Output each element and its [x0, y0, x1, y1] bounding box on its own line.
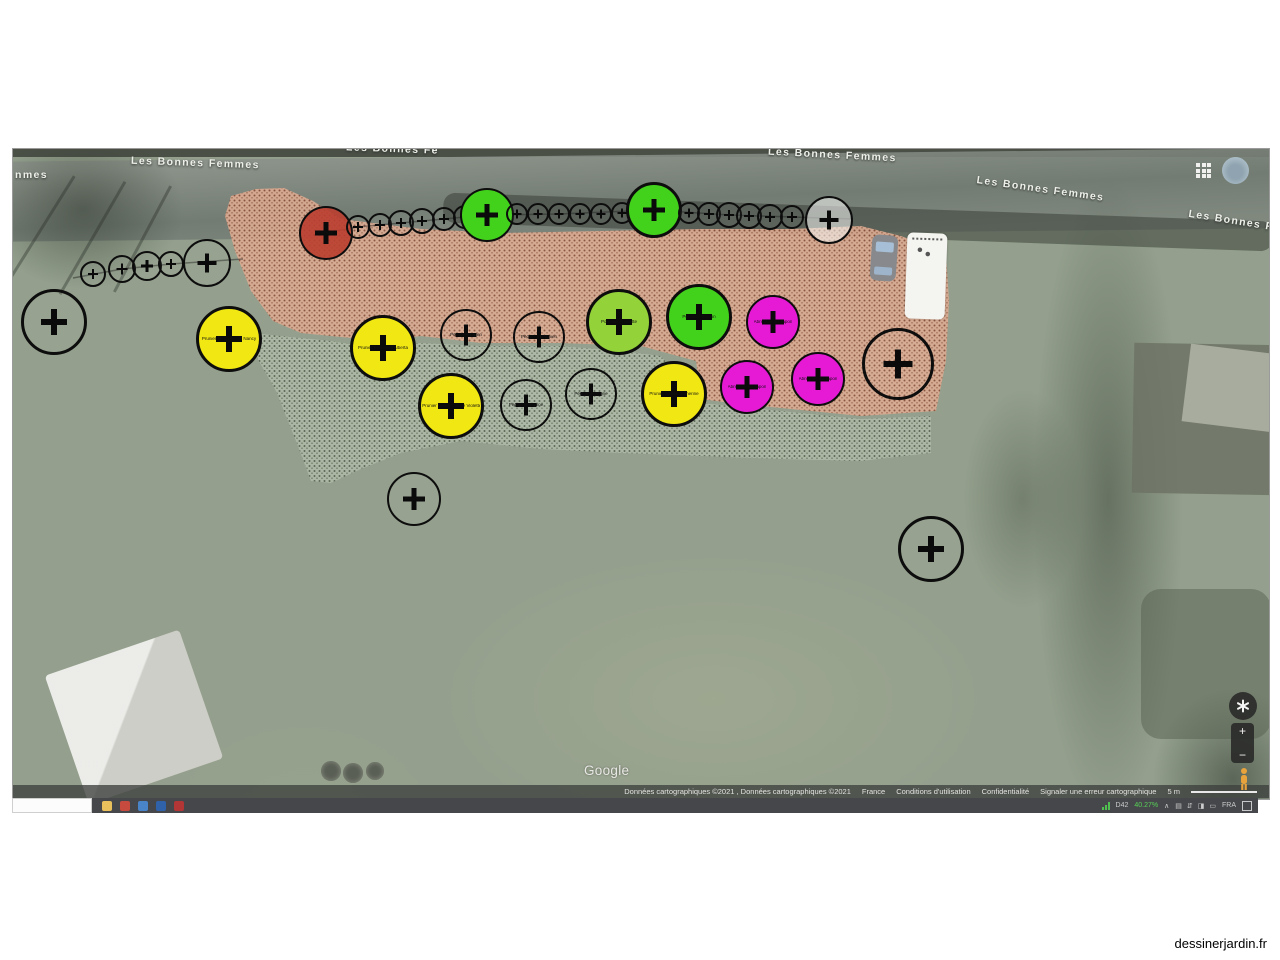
grid-cell — [1202, 174, 1206, 178]
round-tool-button[interactable] — [1229, 692, 1257, 720]
plant-label: Pommier Pigeon — [682, 315, 715, 320]
attribution-link[interactable]: Conditions d'utilisation — [896, 787, 970, 796]
attribution-link[interactable]: Signaler une erreur cartographique — [1040, 787, 1156, 796]
plant-label: Abricotier du Japon — [799, 377, 838, 382]
tray-icon[interactable]: ▤ — [1175, 802, 1182, 810]
shrub — [321, 761, 341, 781]
plant-label: Pommier — [405, 497, 423, 502]
grid-cell — [1196, 169, 1200, 173]
plant-label: Abricotier du Japon — [728, 385, 767, 390]
tray-glyphs[interactable]: ▤⇵◨▭ — [1175, 802, 1216, 810]
plant-label: Pommier — [645, 208, 663, 213]
plant-label: Pommier — [478, 213, 496, 218]
network-monitor-icon — [1102, 802, 1110, 810]
tray-language[interactable]: FRA — [1222, 802, 1236, 809]
plant-label: Prunier Président Alberta — [358, 346, 408, 351]
attribution-text: Données cartographiques ©2021 , Données … — [624, 787, 851, 796]
plant-label: Prunier Mirabelle de Nancy — [202, 337, 256, 342]
zoom-control[interactable]: + − — [1231, 723, 1254, 763]
grid-cell — [1202, 163, 1206, 167]
system-tray[interactable]: D42 40.27% ∧ ▤⇵◨▭ FRA — [1102, 801, 1252, 811]
attribution-text: 5 m — [1167, 787, 1180, 796]
satellite-map[interactable]: nmesLes Bonnes FemmesLes Bonnes FeLes Bo… — [12, 148, 1270, 800]
tray-percent: 40.27% — [1134, 802, 1158, 809]
shrub — [343, 763, 363, 783]
asterisk-icon — [1236, 699, 1250, 713]
grid-cell — [1196, 163, 1200, 167]
plant-label: Pêcher Redhaven — [521, 335, 557, 340]
shrub — [366, 762, 384, 780]
taskbar-app-icon-app-blue[interactable] — [138, 801, 148, 811]
grid-cell — [1207, 169, 1211, 173]
plant-label: Prunier Sainte Catherine — [649, 392, 698, 397]
site-branding: dessinerjardin.fr — [1175, 936, 1268, 951]
grid-cell — [1202, 169, 1206, 173]
plant-label: Pêcher Sanguine — [509, 403, 544, 408]
tray-icon[interactable]: ⇵ — [1187, 802, 1193, 810]
zoom-in-button[interactable]: + — [1239, 725, 1246, 737]
plant-label: Abricotier du Japon — [754, 320, 793, 325]
plant-label: Pêcher de Vigne — [574, 392, 607, 397]
plant-label: Poirier — [924, 547, 937, 552]
tray-icon[interactable]: ▭ — [1209, 802, 1216, 810]
plant-label: Cerisier — [318, 231, 334, 236]
notification-center-icon[interactable] — [1242, 801, 1252, 811]
grid-cell — [1207, 163, 1211, 167]
taskbar-app-icons — [98, 801, 188, 811]
taskbar[interactable]: D42 40.27% ∧ ▤⇵◨▭ FRA — [92, 798, 1258, 813]
plant-label: Prunier Reine Claude Violette — [422, 404, 480, 409]
tray-icon[interactable]: ◨ — [1198, 802, 1205, 810]
zoom-out-button[interactable]: − — [1239, 749, 1246, 761]
google-logo: Google — [584, 763, 629, 778]
tray-chevron-icon[interactable]: ∧ — [1164, 802, 1169, 810]
street-view-pegman-icon[interactable] — [1236, 767, 1252, 791]
attribution-text: France — [862, 787, 885, 796]
grid-cell — [1207, 174, 1211, 178]
taskbar-app-icon-app-red[interactable] — [120, 801, 130, 811]
taskbar-search-box[interactable] — [12, 798, 92, 813]
taskbar-app-icon-file-explorer[interactable] — [102, 801, 112, 811]
plant-label: Pommier Reinette — [601, 320, 637, 325]
grid-icon[interactable] — [1196, 163, 1213, 180]
attribution-items: Données cartographiques ©2021 , Données … — [624, 787, 1180, 796]
plant-label: Pêcher Amsden — [450, 333, 482, 338]
grid-cell — [1196, 174, 1200, 178]
attribution-link[interactable]: Confidentialité — [982, 787, 1030, 796]
taskbar-app-icon-app-blue-dark[interactable] — [156, 801, 166, 811]
tray-monitor-label: D42 — [1116, 802, 1129, 809]
shrubs-layer — [13, 149, 1269, 799]
taskbar-app-icon-app-red-dark[interactable] — [174, 801, 184, 811]
attribution-bar: Données cartographiques ©2021 , Données … — [13, 785, 1269, 798]
info-button[interactable] — [1222, 157, 1249, 184]
